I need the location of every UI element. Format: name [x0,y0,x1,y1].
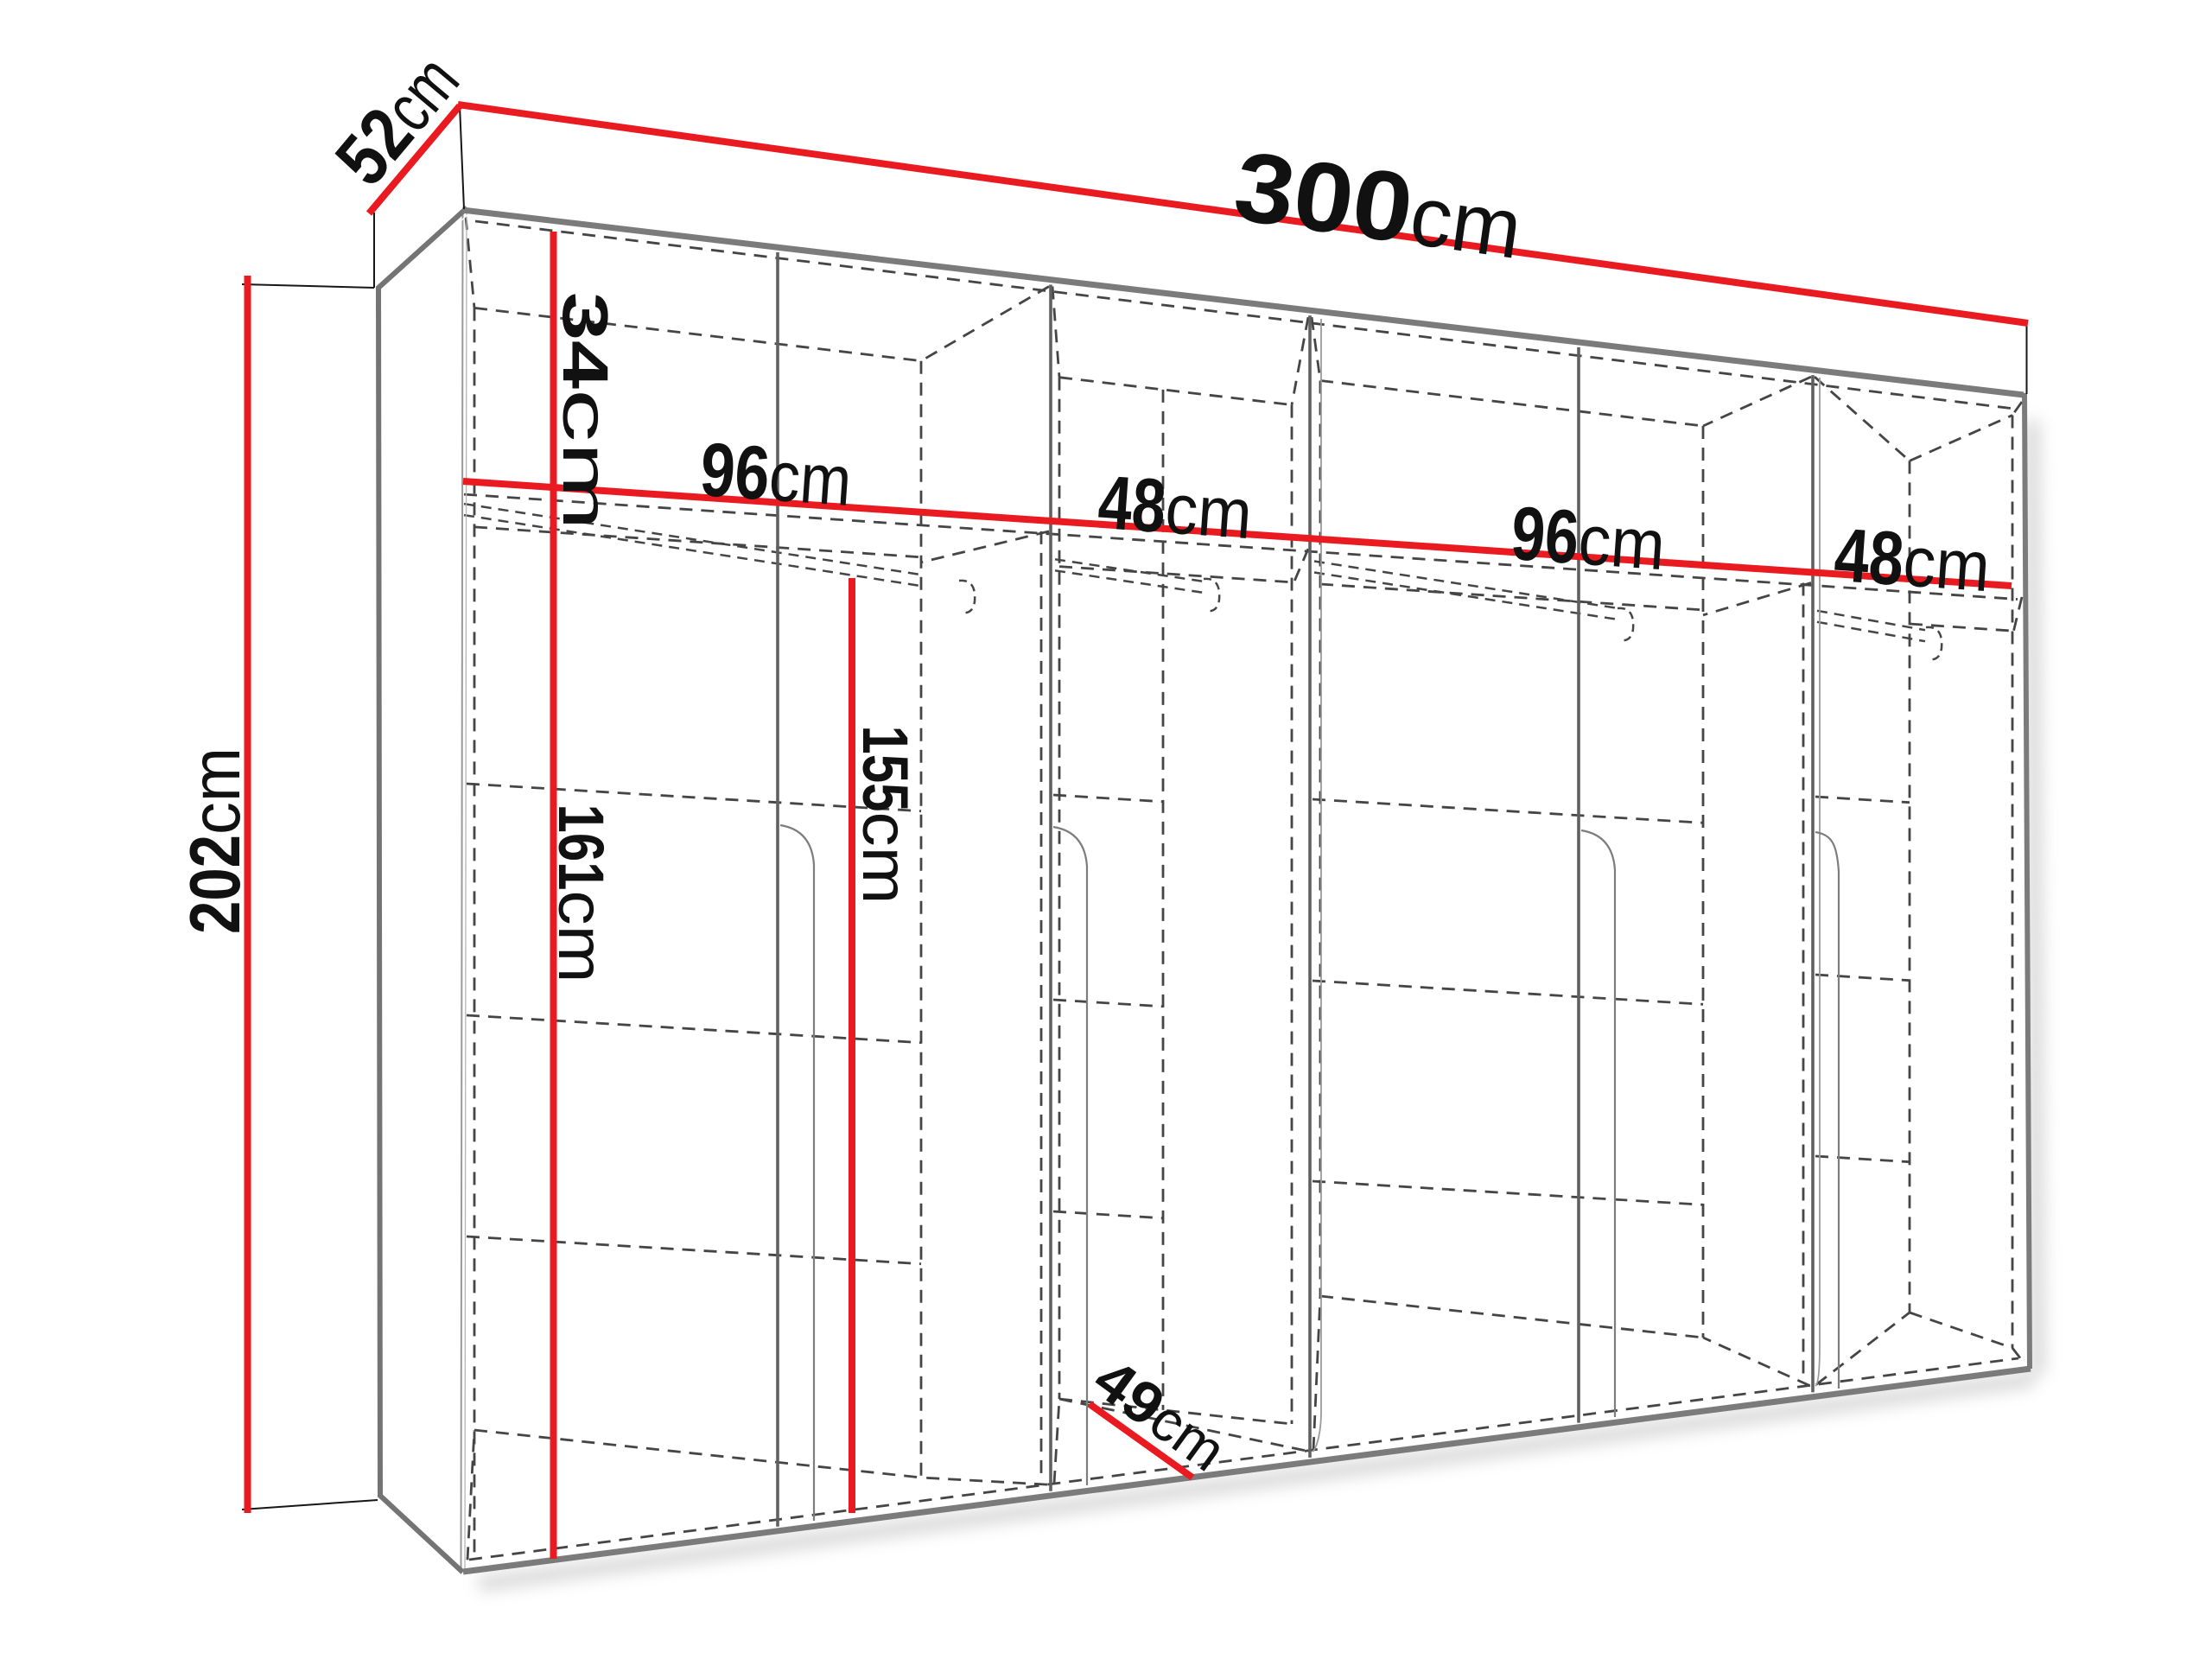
svg-text:96cm: 96cm [1509,490,1668,586]
svg-text:48cm: 48cm [1832,512,1993,607]
svg-text:96cm: 96cm [697,426,854,522]
svg-text:202cm: 202cm [175,747,255,934]
svg-text:161cm: 161cm [545,804,617,983]
svg-text:48cm: 48cm [1096,459,1255,555]
svg-text:34cm: 34cm [550,292,621,531]
svg-text:155cm: 155cm [849,726,921,905]
